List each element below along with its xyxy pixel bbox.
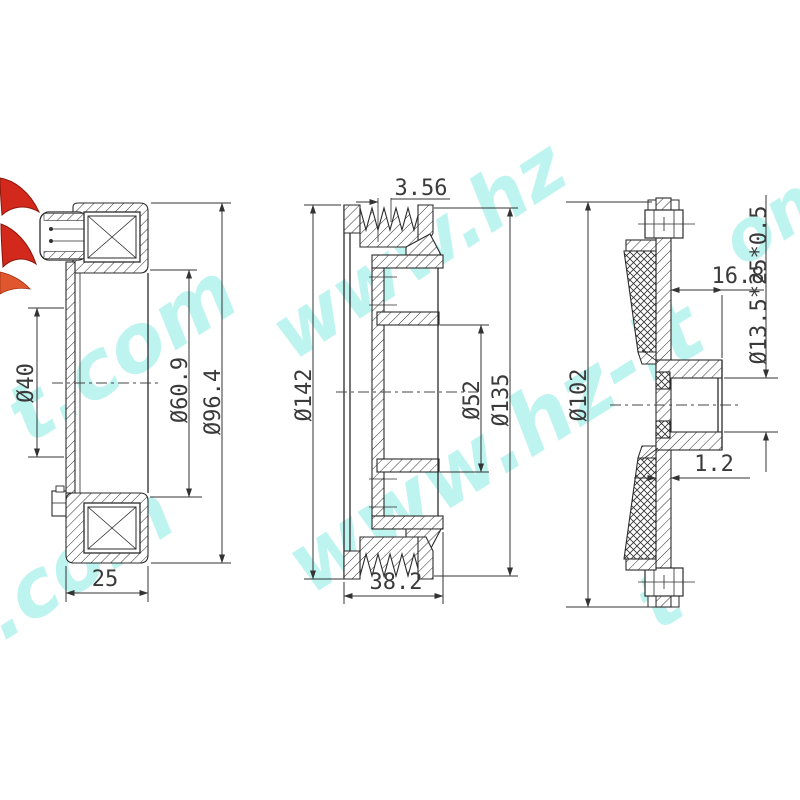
dim-label-groove-pitch: 3.56 <box>395 176 448 201</box>
disc-top-step <box>671 200 679 211</box>
clutch-assembly-drawing: t.com www.hz om www.hz-lt t.com t <box>0 0 800 800</box>
coil-inner-wall <box>66 262 75 493</box>
clutch-disc-plate <box>656 198 671 607</box>
pulley-flange-top-left <box>344 205 360 233</box>
bore-shoulder-bottom <box>377 459 439 472</box>
dim-label-coil-od: Ø96.4 <box>201 369 226 435</box>
coil-winding-top <box>84 212 140 262</box>
connector-pin <box>49 227 53 231</box>
dim-label-bearing-bore: Ø52 <box>460 380 485 420</box>
bearing-flange-bottom <box>372 516 443 529</box>
dim-label-groove-od: Ø135 <box>489 374 514 427</box>
dim-label-coil-bore: Ø40 <box>14 363 39 403</box>
pulley-flange-bottom-left <box>344 551 360 579</box>
coil-winding-bottom <box>84 503 140 553</box>
coil-mount-tab <box>52 486 66 516</box>
dim-label-hub-od: Ø102 <box>567 369 592 422</box>
drawing-canvas: t.com www.hz om www.hz-lt t.com t <box>0 0 800 800</box>
dim-label-pulley-width: 38.2 <box>370 570 423 595</box>
disc-bottom-step <box>648 596 656 607</box>
bearing-flange-top <box>372 255 443 268</box>
bore-shoulder-top <box>377 312 439 325</box>
hub-thread-section <box>656 372 670 389</box>
dim-label-pulley-od: Ø142 <box>292 369 317 422</box>
dim-label-coil-id: Ø60.9 <box>168 357 193 423</box>
dim-label-coil-width: 25 <box>92 567 119 592</box>
disc-bottom-step <box>671 596 679 607</box>
hub-thread-section <box>656 421 670 438</box>
dim-label-hub-thread: Ø13.5*25*0.5 <box>747 206 772 365</box>
connector-pin <box>49 239 53 243</box>
dim-label-plate-thickness: 1.2 <box>694 452 734 477</box>
